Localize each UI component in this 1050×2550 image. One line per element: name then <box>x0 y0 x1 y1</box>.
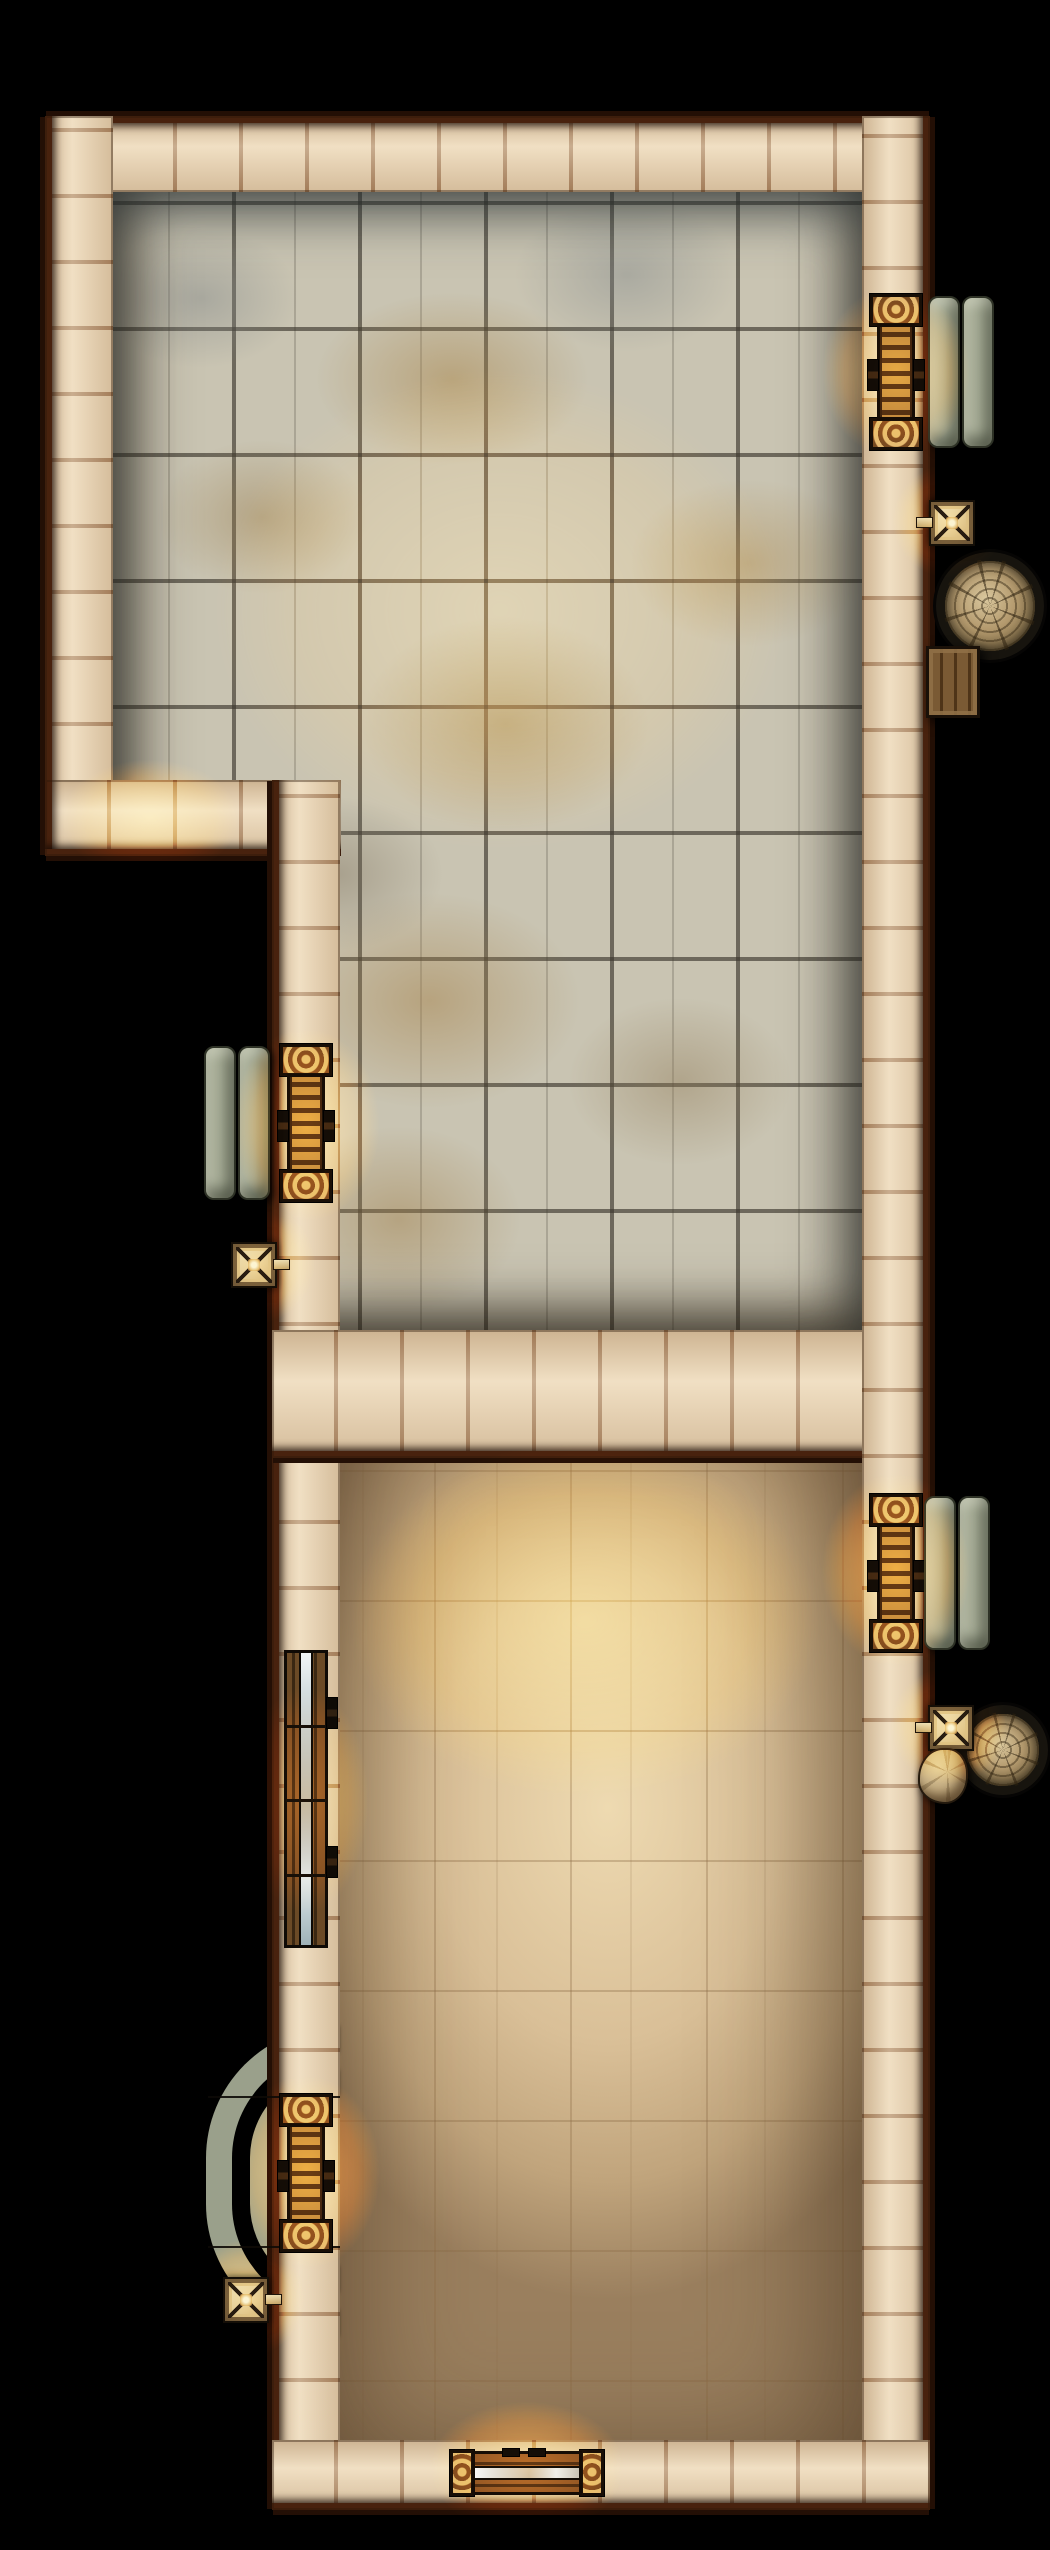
door-bottom-left[interactable] <box>270 2094 342 2252</box>
sconce-right-upper <box>929 500 975 546</box>
door-bottom-main[interactable] <box>450 2448 604 2498</box>
door-mid-left[interactable] <box>270 1044 342 1202</box>
door-cap <box>870 1620 922 1652</box>
door-hinge-bracket <box>868 360 878 390</box>
wall-right <box>862 116 930 2510</box>
door-cap <box>870 1494 922 1526</box>
sand-room-floor <box>300 1340 880 2510</box>
sconce-mount-arm <box>266 2295 281 2304</box>
sconce-right-lower <box>928 1705 974 1751</box>
rope-coil-large <box>936 552 1044 660</box>
sconce-bottom-left <box>223 2277 269 2323</box>
wall-divider <box>272 1330 930 1458</box>
door-hinge-bracket <box>324 1111 334 1141</box>
sconce-left-middle <box>231 1242 277 1288</box>
door-cap <box>870 294 922 326</box>
door-cap <box>280 2094 332 2126</box>
bench-slab <box>924 1496 956 1650</box>
bench-mid-right <box>924 1496 988 1650</box>
bench-slab <box>928 296 960 448</box>
bench-slab <box>204 1046 236 1200</box>
sconce-mount-arm <box>917 518 932 527</box>
bench-slab <box>958 1496 990 1650</box>
door-body <box>284 1650 328 1948</box>
door-cap <box>870 418 922 450</box>
door-cap <box>450 2450 474 2496</box>
door-hinge-bracket <box>327 1698 337 1728</box>
door-cap <box>280 1170 332 1202</box>
door-hinge-bracket <box>278 1111 288 1141</box>
bench-mid-left <box>204 1046 268 1200</box>
door-body <box>287 2124 325 2222</box>
door-light-gap <box>475 2468 579 2478</box>
door-body <box>472 2451 582 2495</box>
door-hinge-bracket <box>278 2161 288 2191</box>
door-body <box>877 1524 915 1622</box>
door-mid-right[interactable] <box>860 1494 932 1652</box>
door-hinge-bracket <box>914 1561 924 1591</box>
door-cap <box>280 1044 332 1076</box>
door-plank-seam <box>286 1799 326 1802</box>
door-hinge-bracket <box>327 1847 337 1877</box>
door-handle <box>529 2449 545 2456</box>
door-body <box>287 1074 325 1172</box>
door-plank-seam <box>286 1725 326 1728</box>
bench-slab <box>962 296 994 448</box>
door-cap <box>580 2450 604 2496</box>
wooden-crate <box>926 646 980 718</box>
bench-top-right <box>928 296 992 448</box>
door-hinge-bracket <box>914 360 924 390</box>
supply-sack <box>918 1748 968 1804</box>
door-hinge-bracket <box>324 2161 334 2191</box>
sconce-mount-arm <box>274 1260 289 1269</box>
battlemap-canvas[interactable] <box>0 0 1050 2550</box>
door-body <box>877 324 915 420</box>
bench-slab <box>238 1046 270 1200</box>
door-long-left[interactable] <box>272 1650 340 1948</box>
door-cap <box>280 2220 332 2252</box>
door-handle <box>503 2449 519 2456</box>
wall-top <box>45 116 930 192</box>
sconce-mount-arm <box>916 1723 931 1732</box>
door-plank-seam <box>286 1874 326 1877</box>
door-top-right[interactable] <box>860 294 932 450</box>
wall-left-upper <box>45 116 113 788</box>
door-hinge-bracket <box>868 1561 878 1591</box>
